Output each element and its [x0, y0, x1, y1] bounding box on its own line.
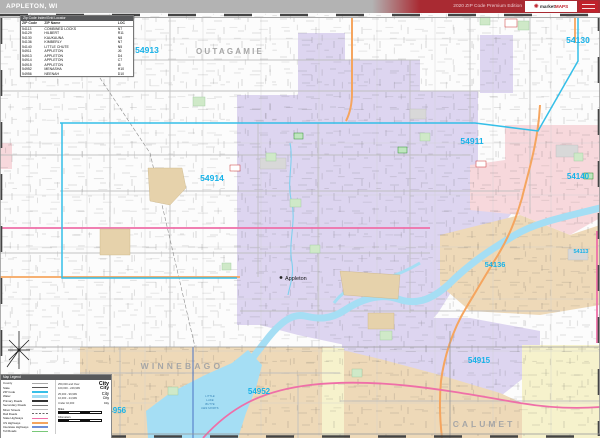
city-dot-appleton [280, 276, 283, 279]
toll-road-swatch [32, 431, 48, 433]
zip-label-54140: 54140 [567, 172, 590, 181]
secondary-road-swatch [32, 405, 48, 406]
legend-label: Secondary Roads [3, 403, 31, 407]
zip-label-54130: 54130 [566, 35, 590, 45]
city-sample: City [103, 396, 109, 400]
state-highway-swatch [32, 418, 48, 420]
cell: NEENAH [43, 72, 116, 77]
legend-label: Interstate Highways [3, 425, 31, 429]
city-size-range: 100,000 - 249,999 [58, 387, 80, 390]
county-line-swatch [32, 383, 48, 384]
table-row: 54956NEENAHD10 [21, 72, 133, 77]
state-line-swatch [32, 387, 48, 388]
scale-bar-miles: Miles [58, 408, 109, 415]
zip-label-54113: 54113 [574, 249, 589, 255]
title-bar: APPLETON, WI 2020 ZIP Code Premium Editi… [0, 0, 600, 13]
county-label-winnebago: WINNEBAGO [141, 361, 224, 371]
promo-badge[interactable] [579, 1, 598, 12]
lake-label-line4: DES MORTS [201, 406, 218, 410]
county-label-outagamie: OUTAGAMIE [196, 47, 264, 56]
edition-label: 2020 ZIP Code Premium Edition [453, 0, 522, 13]
zip-label-54952: 54952 [248, 387, 271, 396]
us-highway-swatch [32, 422, 48, 424]
legend-label: County [3, 381, 31, 385]
logo-text-market: market [540, 4, 555, 9]
legend-label: ZIP Code [3, 390, 31, 394]
minor-street-swatch [32, 409, 48, 410]
legend-item: Toll Roads [3, 429, 55, 433]
city-size-range: 25,000 - 99,999 [58, 393, 77, 396]
logo-swirl-icon: ✺ [534, 4, 539, 10]
page-title: APPLETON, WI [6, 0, 58, 13]
logo-text-maps: MAPS [555, 4, 568, 9]
zip-label-54913: 54913 [135, 45, 159, 55]
city-sample: City [104, 401, 109, 405]
compass-rose-icon [5, 329, 33, 371]
zip-label-54911: 54911 [460, 136, 483, 146]
legend-label: Primary Roads [3, 399, 31, 403]
zip-line-swatch [32, 391, 48, 393]
scale-bar-km: Kilometers [58, 416, 109, 423]
km-bar [58, 419, 102, 423]
city-size-range: 250,000 and Over [58, 383, 80, 386]
railroad-swatch [32, 413, 48, 414]
cell: 54956 [21, 72, 43, 77]
legend-label: Toll Roads [3, 429, 31, 433]
city-label-appleton: Appleton [285, 276, 307, 282]
county-label-calumet: CALUMET [453, 419, 516, 429]
zip-label-54914: 54914 [200, 173, 224, 183]
legend-label: State [3, 386, 31, 390]
primary-road-swatch [32, 400, 48, 402]
legend-label: US Highways [3, 421, 31, 425]
zip-index-panel: Zip Code Index/Grid Locator ZIP Code ZIP… [20, 15, 134, 77]
legend-symbol-column: County State ZIP Code Water Primary Road… [1, 380, 55, 434]
legend-label: Water [3, 394, 31, 398]
legend-label: State Highways [3, 416, 31, 420]
brand-logo[interactable]: ✺marketMAPS [525, 1, 577, 12]
zip-label-54136: 54136 [485, 260, 506, 269]
zip-index-table: ZIP Code ZIP Name LOC 54113COMBINED LOCK… [21, 21, 133, 76]
legend-label: Rail Roads [3, 412, 31, 416]
city-size-range: Under 10,000 [58, 402, 74, 405]
interstate-swatch [32, 426, 48, 428]
legend-label: Minor Streets [3, 408, 31, 412]
city-size-item: Under 10,000City [58, 401, 109, 406]
zip-label-54915: 54915 [468, 356, 491, 365]
miles-bar [58, 411, 102, 415]
cell: D10 [117, 72, 133, 77]
water-swatch [32, 395, 48, 398]
map-legend-panel: Map Legend County State ZIP Code Water P… [0, 374, 112, 438]
map-page: APPLETON, WI 2020 ZIP Code Premium Editi… [0, 0, 600, 438]
legend-city-column: 250,000 and OverCity 100,000 - 249,999Ci… [55, 380, 111, 434]
city-size-range: 10,000 - 24,999 [58, 397, 77, 400]
